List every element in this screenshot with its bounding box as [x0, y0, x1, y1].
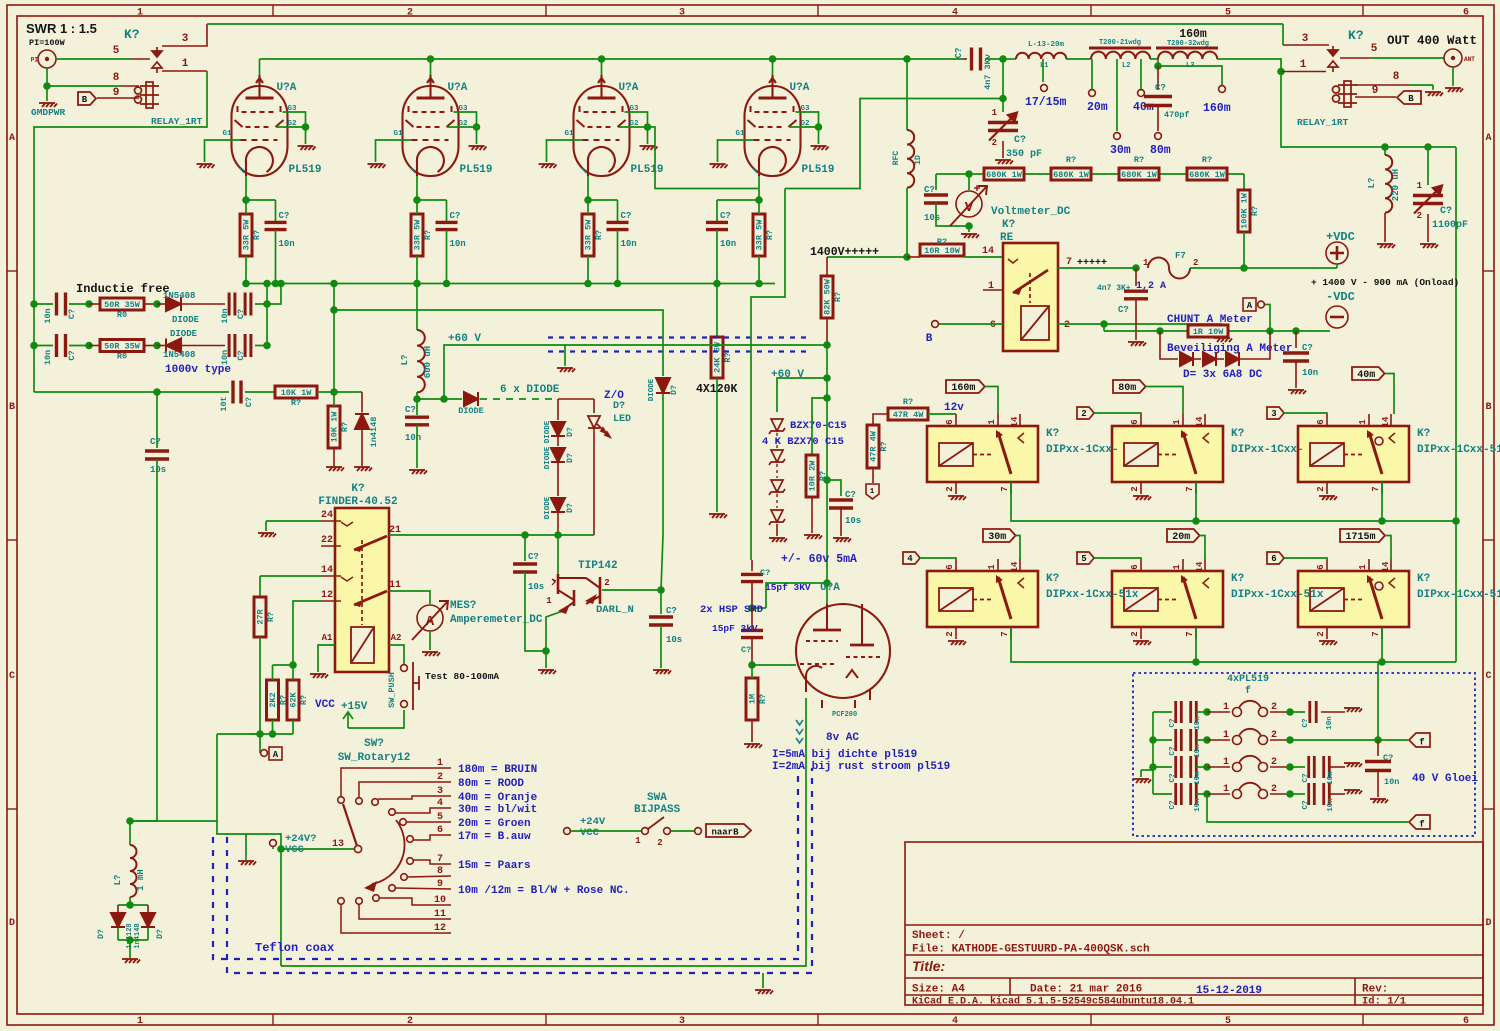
svg-text:1: 1: [1417, 181, 1423, 191]
svg-text:2: 2: [1316, 631, 1326, 636]
svg-text:3: 3: [679, 8, 685, 19]
svg-text:DIODE: DIODE: [544, 420, 552, 443]
svg-text:DIODE: DIODE: [172, 315, 200, 325]
svg-text:+/- 60v 5mA: +/- 60v 5mA: [781, 553, 857, 566]
svg-text:2: 2: [407, 8, 413, 19]
svg-text:2: 2: [1081, 409, 1086, 419]
svg-text:17m = B.auw: 17m = B.auw: [458, 831, 531, 843]
svg-text:1,2 A: 1,2 A: [1136, 281, 1166, 292]
svg-text:C?: C?: [1169, 718, 1177, 728]
svg-text:12: 12: [321, 590, 333, 601]
svg-text:R?: R?: [266, 612, 276, 622]
svg-text:A: A: [9, 133, 15, 144]
svg-text:1: 1: [1223, 757, 1229, 768]
svg-text:1: 1: [137, 1016, 143, 1027]
svg-text:1D: 1D: [914, 155, 923, 165]
svg-text:600 uH: 600 uH: [423, 346, 433, 378]
svg-text:4xPL519: 4xPL519: [1227, 674, 1269, 685]
svg-text:B: B: [926, 333, 933, 345]
svg-text:1R 10W: 1R 10W: [1193, 327, 1225, 337]
svg-text:3: 3: [182, 33, 189, 45]
svg-text:-VDC: -VDC: [1326, 290, 1355, 304]
svg-text:14: 14: [1010, 416, 1020, 427]
svg-text:R?: R?: [765, 230, 775, 240]
svg-text:R?: R?: [594, 230, 604, 240]
svg-text:6: 6: [1130, 564, 1140, 569]
svg-text:K?: K?: [124, 27, 140, 42]
svg-text:R0: R0: [117, 310, 127, 320]
svg-text:2: 2: [437, 772, 443, 783]
svg-text:40m: 40m: [1357, 370, 1375, 381]
svg-text:VCC: VCC: [580, 827, 600, 839]
svg-text:C?: C?: [845, 490, 856, 500]
svg-text:3: 3: [1302, 33, 1309, 45]
svg-text:1: 1: [182, 58, 189, 70]
svg-text:2: 2: [992, 138, 997, 148]
svg-text:10: 10: [434, 895, 446, 906]
svg-text:15-12-2019: 15-12-2019: [1196, 985, 1262, 997]
svg-text:5: 5: [437, 812, 443, 823]
svg-text:U?A: U?A: [820, 582, 840, 594]
svg-text:4: 4: [952, 1016, 958, 1027]
svg-text:K?: K?: [1231, 573, 1244, 585]
svg-text:7: 7: [1371, 486, 1381, 491]
svg-text:C?: C?: [760, 568, 770, 578]
svg-text:Id: 1/1: Id: 1/1: [1362, 996, 1406, 1008]
svg-text:1: 1: [1358, 564, 1368, 570]
svg-text:File: KATHODE-GESTUURD-PA-400Q: File: KATHODE-GESTUURD-PA-400QSK.sch: [912, 944, 1150, 956]
svg-text:C?: C?: [924, 185, 935, 195]
svg-text:D?: D?: [613, 401, 625, 412]
svg-text:33R 5W: 33R 5W: [413, 219, 423, 251]
svg-text:DIPxx-1Cxx-: DIPxx-1Cxx-: [1046, 444, 1119, 456]
svg-text:MES?: MES?: [450, 600, 476, 612]
svg-text:L1: L1: [1040, 62, 1048, 70]
svg-text:10n: 10n: [1194, 798, 1202, 812]
svg-text:f: f: [1419, 820, 1424, 830]
svg-text:C?: C?: [1302, 800, 1310, 810]
svg-text:2: 2: [1130, 631, 1140, 636]
svg-text:R?: R?: [1134, 155, 1144, 165]
svg-text:D?: D?: [97, 929, 106, 939]
svg-text:C?: C?: [1169, 800, 1177, 810]
svg-text:17/15m: 17/15m: [1025, 96, 1067, 109]
svg-text:C?: C?: [1302, 718, 1310, 728]
svg-text:I=5mA bij dichte pl519: I=5mA bij dichte pl519: [772, 749, 917, 761]
svg-text:A: A: [1247, 301, 1253, 311]
svg-text:470pf: 470pf: [1164, 110, 1190, 120]
svg-text:1: 1: [1358, 419, 1368, 425]
svg-text:+60 V: +60 V: [448, 333, 481, 345]
svg-text:30m = bl/wit: 30m = bl/wit: [458, 804, 537, 816]
svg-text:VCC: VCC: [285, 844, 305, 856]
svg-text:4n7 3K+: 4n7 3K+: [1097, 284, 1131, 293]
svg-text:4X120K: 4X120K: [696, 383, 738, 396]
svg-text:82K 50W: 82K 50W: [823, 278, 833, 315]
svg-text:C?: C?: [1383, 753, 1393, 763]
svg-text:1: 1: [437, 758, 443, 769]
svg-text:1: 1: [870, 488, 875, 496]
svg-text:62K: 62K: [289, 691, 299, 707]
svg-text:2x HSP SMD: 2x HSP SMD: [700, 604, 763, 616]
svg-text:6: 6: [1130, 419, 1140, 424]
svg-text:FINDER-40.52: FINDER-40.52: [318, 496, 397, 508]
svg-text:Inductie free: Inductie free: [76, 282, 170, 296]
svg-text:5: 5: [1225, 8, 1231, 19]
svg-text:1000v type: 1000v type: [165, 364, 231, 376]
svg-text:SW_PUSH: SW_PUSH: [387, 672, 397, 708]
svg-text:R?: R?: [291, 398, 301, 408]
svg-text:5: 5: [1081, 554, 1086, 564]
svg-text:5: 5: [113, 45, 120, 57]
svg-text:C?: C?: [405, 405, 416, 415]
svg-text:B: B: [82, 95, 88, 105]
svg-text:1: 1: [1172, 419, 1182, 425]
svg-text:L?: L?: [113, 875, 123, 886]
svg-text:6: 6: [1463, 8, 1469, 19]
svg-text:R?: R?: [723, 352, 733, 362]
svg-text:ANT: ANT: [1464, 56, 1475, 63]
svg-text:6: 6: [945, 564, 955, 569]
svg-text:9: 9: [437, 879, 443, 890]
svg-text:1n4148: 1n4148: [369, 417, 379, 448]
svg-text:10n: 10n: [1194, 744, 1202, 758]
svg-text:C?: C?: [954, 48, 964, 59]
svg-text:1: 1: [1223, 702, 1229, 713]
svg-text:2: 2: [1417, 211, 1422, 221]
svg-text:6: 6: [945, 419, 955, 424]
svg-text:2: 2: [1316, 486, 1326, 491]
svg-text:10R 10W: 10R 10W: [924, 246, 961, 256]
svg-text:R?: R?: [818, 471, 828, 481]
svg-text:R?: R?: [903, 397, 913, 407]
svg-text:10s: 10s: [666, 635, 682, 645]
svg-text:U?A: U?A: [619, 82, 639, 94]
svg-text:Voltmeter_DC: Voltmeter_DC: [991, 206, 1071, 218]
svg-text:f: f: [1245, 685, 1251, 697]
svg-text:10n: 10n: [405, 433, 421, 443]
svg-text:10n: 10n: [1327, 771, 1335, 785]
svg-text:680K 1W: 680K 1W: [1189, 170, 1226, 180]
svg-text:6: 6: [990, 320, 996, 331]
svg-text:B: B: [1408, 94, 1414, 104]
svg-text:C?: C?: [1302, 343, 1313, 353]
svg-text:1n4148: 1n4148: [134, 923, 142, 948]
svg-text:A1: A1: [322, 633, 333, 643]
svg-text:DIODE: DIODE: [458, 406, 484, 416]
svg-text:RELAY_1RT: RELAY_1RT: [151, 116, 203, 127]
svg-text:4: 4: [952, 8, 958, 19]
svg-text:1M: 1M: [748, 694, 758, 704]
svg-text:10n: 10n: [1326, 716, 1334, 730]
svg-text:R?: R?: [1250, 206, 1260, 216]
svg-text:8: 8: [113, 72, 120, 84]
svg-text:6: 6: [1316, 419, 1326, 424]
svg-text:1N5408: 1N5408: [163, 350, 195, 360]
svg-text:D: D: [1485, 918, 1491, 929]
svg-text:f: f: [1419, 738, 1424, 748]
svg-text:11: 11: [389, 580, 401, 591]
svg-text:33R 5W: 33R 5W: [584, 219, 594, 251]
svg-text:6: 6: [1271, 554, 1276, 564]
svg-text:1100pF: 1100pF: [1432, 220, 1468, 231]
svg-text:SWA: SWA: [647, 792, 667, 804]
svg-text:4: 4: [437, 798, 443, 809]
svg-text:27R: 27R: [256, 608, 266, 624]
svg-text:20m = Groen: 20m = Groen: [458, 818, 531, 830]
svg-text:7: 7: [1185, 631, 1195, 636]
svg-text:U?A: U?A: [448, 82, 468, 94]
svg-text:10t: 10t: [219, 396, 229, 411]
svg-text:40m: 40m: [1133, 101, 1154, 114]
svg-text:U?A: U?A: [277, 82, 297, 94]
svg-text:1: 1: [987, 419, 997, 425]
svg-text:DIODE: DIODE: [170, 329, 198, 339]
svg-text:Amperemeter_DC: Amperemeter_DC: [450, 614, 543, 626]
svg-text:10s: 10s: [150, 465, 166, 475]
svg-text:Date: 21 mar 2016: Date: 21 mar 2016: [1030, 984, 1142, 996]
svg-text:2: 2: [407, 1016, 413, 1027]
svg-text:33R 5W: 33R 5W: [755, 219, 765, 251]
svg-text:6: 6: [1316, 564, 1326, 569]
svg-text:10n: 10n: [1194, 716, 1202, 730]
svg-text:180m = BRUIN: 180m = BRUIN: [458, 764, 537, 776]
svg-text:10n: 10n: [1194, 771, 1202, 785]
svg-text:C?: C?: [741, 645, 751, 655]
svg-text:350 pF: 350 pF: [1006, 149, 1042, 160]
svg-text:680K 1W: 680K 1W: [986, 170, 1023, 180]
svg-text:1: 1: [1300, 59, 1307, 71]
svg-text:DIODE: DIODE: [544, 446, 552, 469]
svg-text:10s: 10s: [845, 516, 861, 526]
svg-text:14: 14: [1195, 561, 1205, 572]
svg-text:K?: K?: [1002, 219, 1015, 231]
svg-text:160m: 160m: [951, 383, 975, 394]
svg-text:10R 2W: 10R 2W: [808, 460, 818, 492]
svg-text:C?: C?: [1118, 305, 1129, 315]
svg-text:R?: R?: [252, 230, 262, 240]
svg-text:100K 1W: 100K 1W: [1240, 192, 1250, 229]
svg-text:C?: C?: [279, 211, 290, 221]
svg-text:GMDPWR: GMDPWR: [31, 107, 66, 118]
svg-text:3: 3: [1271, 409, 1276, 419]
svg-text:14: 14: [1195, 416, 1205, 427]
svg-text:12: 12: [434, 923, 446, 934]
svg-text:10n: 10n: [450, 239, 466, 249]
svg-text:8: 8: [437, 866, 443, 877]
svg-text:50R 35W: 50R 35W: [104, 300, 141, 310]
svg-text:DIPxx-1Cxx-51k: DIPxx-1Cxx-51k: [1417, 589, 1500, 601]
svg-text:2: 2: [1064, 320, 1070, 331]
svg-text:1: 1: [635, 836, 641, 846]
svg-text:2: 2: [1130, 486, 1140, 491]
svg-text:+15V: +15V: [341, 701, 368, 713]
svg-text:47R 4W: 47R 4W: [893, 410, 925, 420]
svg-text:C?: C?: [67, 350, 77, 360]
svg-text:80m: 80m: [1118, 383, 1136, 394]
svg-text:C: C: [1485, 671, 1491, 682]
svg-text:L-13-20m: L-13-20m: [1028, 41, 1065, 49]
svg-text:7: 7: [1000, 631, 1010, 636]
svg-text:R?: R?: [1202, 155, 1212, 165]
svg-text:47R 4W: 47R 4W: [869, 430, 879, 462]
svg-text:1: 1: [992, 108, 998, 118]
svg-text:C?: C?: [67, 309, 77, 319]
svg-text:A: A: [273, 750, 279, 760]
svg-text:DIPxx-1Cxx-51x: DIPxx-1Cxx-51x: [1231, 589, 1324, 601]
svg-text:6: 6: [437, 825, 443, 836]
svg-text:24: 24: [321, 510, 333, 521]
svg-text:6 x DIODE: 6 x DIODE: [500, 384, 560, 396]
svg-text:10n: 10n: [1384, 777, 1399, 787]
svg-text:C?: C?: [666, 606, 677, 616]
svg-text:C?: C?: [236, 309, 246, 319]
svg-text:3: 3: [679, 1016, 685, 1027]
svg-text:+60 V: +60 V: [771, 369, 804, 381]
svg-text:L2: L2: [1122, 62, 1130, 70]
svg-text:PL519: PL519: [289, 164, 322, 176]
svg-text:G1: G1: [565, 130, 575, 138]
svg-text:14: 14: [982, 246, 994, 257]
svg-text:10n: 10n: [220, 350, 230, 365]
svg-text:D?: D?: [566, 453, 575, 463]
svg-text:2: 2: [604, 578, 609, 588]
svg-text:30m: 30m: [988, 532, 1006, 543]
svg-text:1: 1: [1172, 564, 1182, 570]
svg-text:C?: C?: [450, 211, 461, 221]
svg-text:Title:: Title:: [912, 958, 945, 974]
svg-text:12v: 12v: [944, 402, 964, 414]
svg-text:K?: K?: [351, 483, 364, 495]
svg-text:R?: R?: [299, 695, 309, 705]
svg-text:10s: 10s: [528, 582, 544, 592]
svg-text:C: C: [9, 671, 15, 682]
svg-text:7: 7: [1371, 631, 1381, 636]
svg-text:PL519: PL519: [460, 164, 493, 176]
svg-text:D: D: [9, 918, 15, 929]
svg-text:DIPxx-1Cxx-: DIPxx-1Cxx-: [1231, 444, 1304, 456]
svg-text:DIODE: DIODE: [544, 496, 552, 519]
svg-text:14: 14: [1381, 416, 1391, 427]
svg-text:C?: C?: [528, 552, 539, 562]
svg-text:+++++: +++++: [1077, 258, 1107, 269]
svg-text:7: 7: [1066, 257, 1072, 268]
svg-text:1N5408: 1N5408: [163, 291, 195, 301]
svg-text:C?: C?: [1440, 206, 1452, 217]
svg-text:10n: 10n: [1302, 368, 1318, 378]
svg-text:D?: D?: [566, 503, 575, 513]
svg-text:DIODE: DIODE: [648, 378, 656, 401]
svg-text:20m: 20m: [1172, 532, 1190, 543]
svg-text:30m: 30m: [1110, 144, 1131, 157]
svg-text:20m: 20m: [1087, 101, 1108, 114]
svg-text:14: 14: [321, 565, 333, 576]
svg-text:K?: K?: [1348, 28, 1364, 43]
svg-text:DIPxx-1Cxx-51x: DIPxx-1Cxx-51x: [1046, 589, 1139, 601]
svg-text:D?: D?: [156, 929, 165, 939]
svg-text:K?: K?: [1046, 428, 1059, 440]
svg-text:680K 1W: 680K 1W: [1121, 170, 1158, 180]
svg-text:2: 2: [945, 631, 955, 636]
svg-text:RFC: RFC: [892, 151, 901, 166]
svg-text:80m = ROOD: 80m = ROOD: [458, 778, 524, 790]
svg-text:RELAY_1RT: RELAY_1RT: [1297, 117, 1349, 128]
svg-text:C?: C?: [720, 211, 731, 221]
svg-text:40 V Gloei: 40 V Gloei: [1412, 773, 1478, 785]
svg-text:2: 2: [945, 486, 955, 491]
svg-text:DIPxx-1Cxx-51k: DIPxx-1Cxx-51k: [1417, 444, 1500, 456]
svg-text:D?: D?: [566, 427, 575, 437]
svg-text:680K 1W: 680K 1W: [1053, 170, 1090, 180]
svg-text:4 K BZX70 C15: 4 K BZX70 C15: [762, 436, 844, 448]
svg-text:9: 9: [113, 87, 120, 99]
svg-text:1: 1: [546, 596, 552, 606]
svg-text:DARL_N: DARL_N: [596, 604, 634, 616]
svg-text:SW_Rotary12: SW_Rotary12: [338, 752, 411, 764]
svg-text:C?: C?: [1155, 83, 1166, 93]
svg-text:1: 1: [987, 564, 997, 570]
svg-text:L?: L?: [1367, 178, 1377, 189]
svg-text:3: 3: [437, 786, 443, 797]
svg-text:KiCad E.D.A. kicad 5.1.5-5254: KiCad E.D.A. kicad 5.1.5-52549c584ubuntu…: [912, 996, 1194, 1008]
svg-text:Sheet: /: Sheet: /: [912, 930, 965, 942]
svg-text:F7: F7: [1175, 251, 1186, 261]
svg-text:C?: C?: [1169, 773, 1177, 783]
svg-text:C?: C?: [236, 350, 246, 360]
svg-text:11: 11: [434, 909, 446, 920]
svg-text:7: 7: [1000, 486, 1010, 491]
svg-text:T200-21wdg: T200-21wdg: [1099, 39, 1141, 47]
svg-text:22: 22: [321, 535, 333, 546]
svg-text:+ 1400 V - 900 mA (Onload): + 1400 V - 900 mA (Onload): [1311, 277, 1459, 288]
svg-text:10n: 10n: [279, 239, 295, 249]
svg-text:BIJPASS: BIJPASS: [634, 804, 681, 816]
svg-text:C?: C?: [1302, 773, 1310, 783]
svg-text:7: 7: [1185, 486, 1195, 491]
svg-text:R?: R?: [833, 292, 843, 302]
svg-text:C?: C?: [150, 437, 161, 447]
svg-text:10n: 10n: [43, 350, 53, 365]
svg-text:VCC: VCC: [315, 699, 335, 711]
svg-text:C?: C?: [621, 211, 632, 221]
svg-text:220 uH: 220 uH: [1391, 169, 1401, 201]
svg-text:B: B: [9, 402, 15, 413]
svg-text:1: 1: [137, 8, 143, 19]
svg-text:10K 1W: 10K 1W: [281, 388, 313, 398]
svg-text:6: 6: [1463, 1016, 1469, 1027]
svg-text:2K2: 2K2: [268, 692, 278, 707]
svg-text:R0: R0: [117, 352, 127, 362]
svg-text:10n: 10n: [220, 308, 230, 323]
svg-text:5: 5: [1225, 1016, 1231, 1027]
svg-text:33R 5W: 33R 5W: [242, 219, 252, 251]
svg-text:40m = Oranje: 40m = Oranje: [458, 792, 538, 804]
svg-text:14: 14: [1010, 561, 1020, 572]
svg-text:PL519: PL519: [631, 164, 664, 176]
svg-text:9: 9: [1372, 85, 1379, 97]
svg-text:Test 80-100mA: Test 80-100mA: [425, 671, 499, 682]
svg-text:160m: 160m: [1203, 102, 1231, 115]
svg-text:8v AC: 8v AC: [826, 732, 859, 744]
svg-text:L?: L?: [400, 355, 410, 366]
svg-text:10s: 10s: [924, 213, 940, 223]
svg-text:50R 35W: 50R 35W: [104, 342, 141, 352]
svg-text:A2: A2: [391, 633, 402, 643]
svg-text:SWR 1 : 1.5: SWR 1 : 1.5: [26, 21, 97, 36]
svg-text:PL519: PL519: [802, 164, 835, 176]
svg-text:R?: R?: [423, 230, 433, 240]
svg-text:naarB: naarB: [711, 828, 739, 838]
